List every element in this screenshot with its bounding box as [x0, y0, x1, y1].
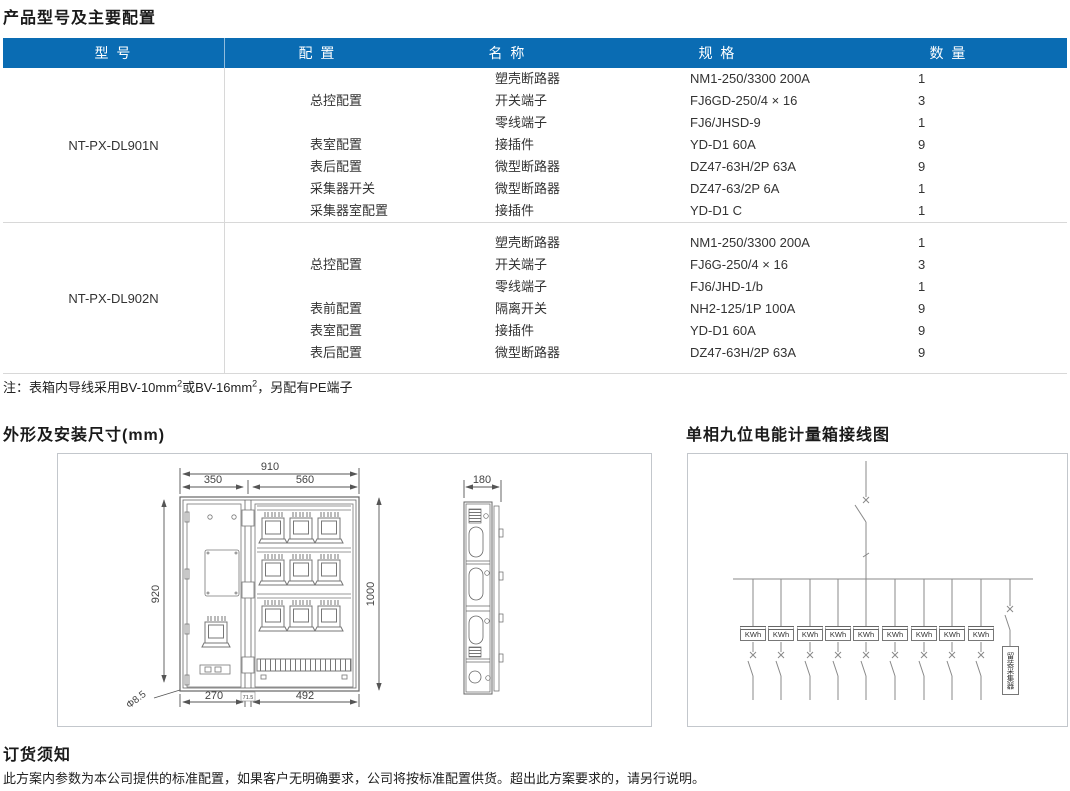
dimension-drawing: 910 350 560 920 1000 270 71.5 492 Φ8.5 1…	[58, 454, 651, 726]
dim-1000: 1000	[365, 582, 377, 606]
cell-spec: YD-D1 60A	[605, 320, 830, 342]
cell-name: 塑壳断路器	[410, 68, 605, 90]
cell-name: 塑壳断路器	[410, 232, 605, 254]
model-name: NT-PX-DL901N	[3, 68, 225, 222]
cell-qty: 3	[830, 90, 1067, 112]
dimensions-section-title: 外形及安装尺寸(mm)	[3, 421, 165, 445]
kwh-meter-box: KWh	[911, 626, 937, 641]
cell-qty: 1	[830, 200, 1067, 222]
dimensions-panel: 910 350 560 920 1000 270 71.5 492 Φ8.5 1…	[57, 453, 652, 727]
cell-config	[225, 232, 410, 254]
kwh-meter-box: KWh	[768, 626, 794, 641]
kwh-meter-box: KWh	[853, 626, 879, 641]
cell-qty: 1	[830, 232, 1067, 254]
cell-config: 总控配置	[225, 90, 410, 112]
header-model: 型 号	[3, 38, 225, 68]
cell-qty: 1	[830, 178, 1067, 200]
cell-spec: DZ47-63H/2P 63A	[605, 156, 830, 178]
side-view	[464, 502, 503, 694]
cell-name: 接插件	[410, 134, 605, 156]
cell-spec: DZ47-63/2P 6A	[605, 178, 830, 200]
header-config: 配 置	[225, 38, 410, 68]
cell-config: 表后配置	[225, 342, 410, 364]
dim-180: 180	[473, 474, 491, 486]
table-header: 型 号 配 置 名 称 规 格 数 量	[3, 38, 1067, 68]
order-notes-title: 订货须知	[3, 741, 71, 765]
dim-350: 350	[204, 474, 222, 486]
dim-920: 920	[150, 585, 162, 603]
dim-270: 270	[205, 690, 223, 702]
cell-config: 表前配置	[225, 298, 410, 320]
dim-492: 492	[296, 690, 314, 702]
kwh-meter-box: KWh	[939, 626, 965, 641]
cell-qty: 1	[830, 276, 1067, 298]
kwh-meter-box: KWh	[882, 626, 908, 641]
cell-spec: DZ47-63H/2P 63A	[605, 342, 830, 364]
cell-config: 总控配置	[225, 254, 410, 276]
catalog-page: 产品型号及主要配置 型 号 配 置 名 称 规 格 数 量 NT-PX-DL90…	[0, 0, 1070, 791]
terminal-strip	[257, 659, 351, 679]
collector-box: 留装采集器	[1002, 646, 1019, 695]
model-name: NT-PX-DL902N	[3, 223, 225, 373]
footnote-text: 注：表箱内导线采用BV-10mm	[3, 380, 177, 395]
table-section-902n: NT-PX-DL902N 塑壳断路器NM1-250/3300 200A1 总控配…	[3, 222, 1067, 373]
cell-config	[225, 112, 410, 134]
cell-name: 隔离开关	[410, 298, 605, 320]
cell-spec: YD-D1 C	[605, 200, 830, 222]
cell-spec: FJ6/JHD-1/b	[605, 276, 830, 298]
cell-qty: 9	[830, 298, 1067, 320]
cell-config: 表室配置	[225, 134, 410, 156]
cell-qty: 1	[830, 68, 1067, 90]
cell-name: 开关端子	[410, 90, 605, 112]
cell-name: 零线端子	[410, 276, 605, 298]
cell-spec: NM1-250/3300 200A	[605, 68, 830, 90]
cell-name: 零线端子	[410, 112, 605, 134]
cell-qty: 9	[830, 320, 1067, 342]
cell-qty: 9	[830, 156, 1067, 178]
page-title: 产品型号及主要配置	[3, 4, 156, 28]
cell-name: 接插件	[410, 200, 605, 222]
cell-name: 接插件	[410, 320, 605, 342]
dim-hole: Φ8.5	[124, 689, 148, 711]
kwh-meter-box: KWh	[825, 626, 851, 641]
header-spec: 规 格	[605, 38, 830, 68]
cell-config: 采集器室配置	[225, 200, 410, 222]
kwh-meter-box: KWh	[740, 626, 766, 641]
dim-910: 910	[261, 461, 279, 473]
cell-name: 开关端子	[410, 254, 605, 276]
wiring-section-title: 单相九位电能计量箱接线图	[686, 421, 890, 445]
cell-name: 微型断路器	[410, 178, 605, 200]
meter-windows	[259, 512, 343, 631]
cell-qty: 9	[830, 342, 1067, 364]
cell-qty: 1	[830, 112, 1067, 134]
cell-spec: FJ6GD-250/4 × 16	[605, 90, 830, 112]
cell-spec: NH2-125/1P 100A	[605, 298, 830, 320]
kwh-meter-box: KWh	[968, 626, 994, 641]
dim-71-5: 71.5	[243, 695, 254, 701]
order-notes-text: 此方案内参数为本公司提供的标准配置，如果客户无明确要求，公司将按标准配置供货。超…	[3, 768, 705, 787]
cell-config	[225, 276, 410, 298]
cell-qty: 9	[830, 134, 1067, 156]
cell-name: 微型断路器	[410, 342, 605, 364]
left-door-details	[185, 504, 241, 687]
cell-spec: FJ6/JHSD-9	[605, 112, 830, 134]
cell-name: 微型断路器	[410, 156, 605, 178]
header-qty: 数 量	[830, 38, 1067, 68]
header-name: 名 称	[410, 38, 605, 68]
kwh-meter-box: KWh	[797, 626, 823, 641]
wiring-lines	[733, 461, 1033, 700]
spec-table: 型 号 配 置 名 称 规 格 数 量 NT-PX-DL901N 塑壳断路器NM…	[3, 38, 1067, 374]
cell-spec: FJ6G-250/4 × 16	[605, 254, 830, 276]
cell-config: 表室配置	[225, 320, 410, 342]
table-section-901n: NT-PX-DL901N 塑壳断路器NM1-250/3300 200A1 总控配…	[3, 68, 1067, 222]
cell-config: 采集器开关	[225, 178, 410, 200]
wiring-panel: KWh KWh KWh KWh KWh KWh KWh KWh KWh 留装采集…	[687, 453, 1068, 727]
cell-config: 表后配置	[225, 156, 410, 178]
cell-spec: NM1-250/3300 200A	[605, 232, 830, 254]
cell-config	[225, 68, 410, 90]
cell-spec: YD-D1 60A	[605, 134, 830, 156]
table-footnote: 注：表箱内导线采用BV-10mm2或BV-16mm2，另配有PE端子	[3, 377, 353, 396]
cell-qty: 3	[830, 254, 1067, 276]
dim-560: 560	[296, 474, 314, 486]
